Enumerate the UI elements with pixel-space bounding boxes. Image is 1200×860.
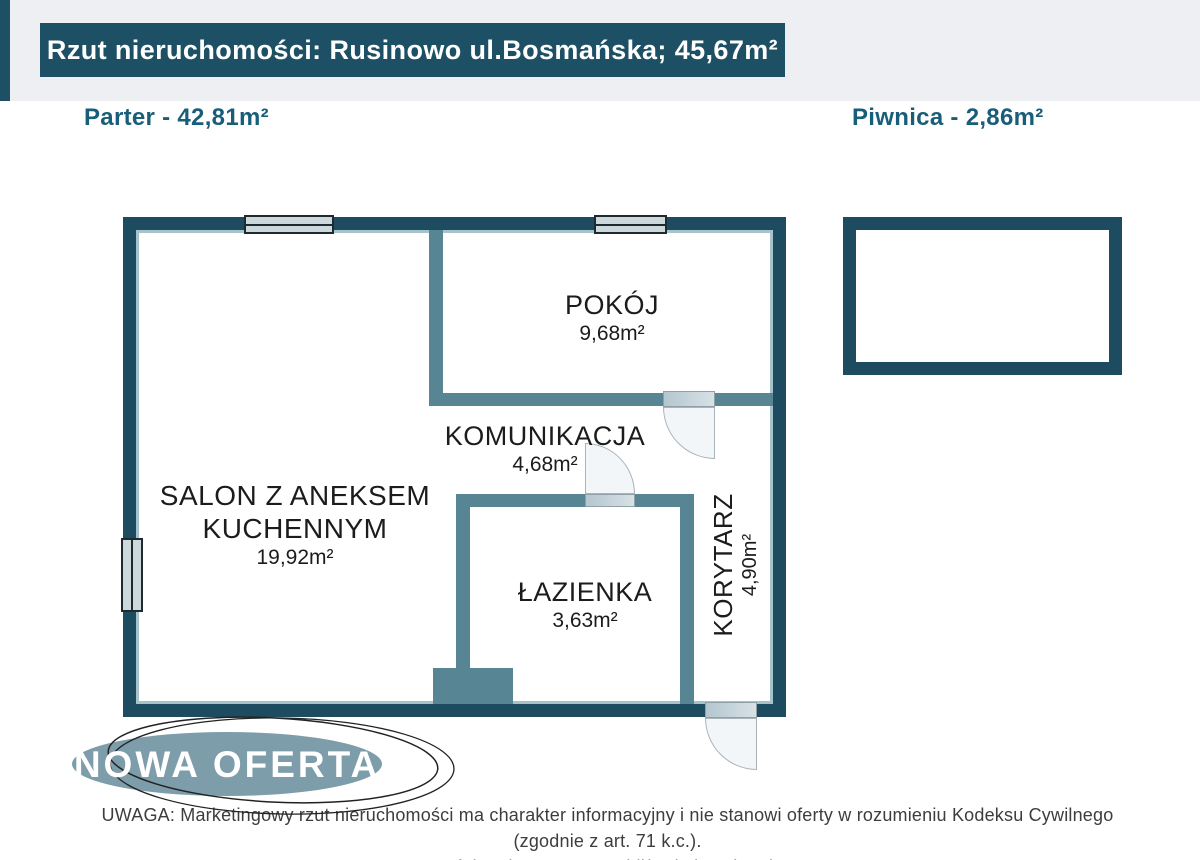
disclaimer-line-2: Wartości podane są w przybliżeniu i zaok… [85, 854, 1130, 860]
room-area: 19,92m² [145, 545, 445, 571]
room-name: KUCHENNYM [145, 512, 445, 545]
room-label-pokoj: POKÓJ 9,68m² [512, 289, 712, 347]
stamp-outline-ellipse [106, 709, 440, 810]
partition-salon-pokoj [429, 230, 443, 406]
outer-wall-top [123, 217, 786, 230]
window-divider [131, 540, 133, 610]
room-name: SALON Z ANEKSEM [145, 479, 445, 512]
disclaimer: UWAGA: Marketingowy rzut nieruchomości m… [85, 802, 1130, 860]
door-swing-entrance [705, 718, 757, 770]
door-leaf-lazienka [585, 494, 635, 507]
header-bar: Rzut nieruchomości: Rusinowo ul.Bosmańsk… [40, 23, 785, 77]
window-salon-top [244, 215, 334, 234]
room-area: 4,90m² [738, 435, 762, 695]
room-label-salon: SALON Z ANEKSEM KUCHENNYM 19,92m² [145, 479, 445, 571]
partition-pokoj-bottom-right [715, 393, 773, 406]
stamp-fill-ellipse [72, 732, 382, 796]
room-name: KOMUNIKACJA [420, 420, 670, 452]
page-title: Rzut nieruchomości: Rusinowo ul.Bosmańsk… [47, 35, 778, 66]
basement-floor-label: Piwnica - 2,86m² [852, 104, 1044, 132]
room-area: 9,68m² [512, 321, 712, 347]
room-area: 4,68m² [420, 452, 670, 478]
partition-pokoj-bottom-left [429, 393, 663, 406]
outer-wall-left [123, 217, 136, 717]
room-name: POKÓJ [512, 289, 712, 321]
room-label-komunikacja: KOMUNIKACJA 4,68m² [420, 420, 670, 478]
basement-plan-outline [843, 217, 1122, 375]
floor-plan-page: Rzut nieruchomości: Rusinowo ul.Bosmańsk… [0, 0, 1200, 860]
outer-wall-right [773, 217, 786, 717]
door-leaf-entrance [705, 702, 757, 718]
window-divider [596, 224, 665, 226]
stamp-text: NOWA OFERTA [74, 744, 380, 785]
window-divider [246, 224, 332, 226]
window-salon-left [121, 538, 143, 612]
partition-lazienka-left [456, 494, 470, 668]
disclaimer-line-1: UWAGA: Marketingowy rzut nieruchomości m… [85, 802, 1130, 854]
shaft-block [433, 668, 513, 704]
room-name: KORYTARZ [708, 435, 738, 695]
door-leaf-pokoj [663, 391, 715, 407]
ground-floor-label: Parter - 42,81m² [84, 104, 269, 132]
partition-lazienka-top-left [456, 494, 585, 507]
room-label-korytarz: KORYTARZ 4,90m² [704, 435, 766, 695]
room-label-lazienka: ŁAZIENKA 3,63m² [480, 576, 690, 634]
room-name: ŁAZIENKA [480, 576, 690, 608]
window-pokoj-top [594, 215, 667, 234]
outer-wall-bottom-left [123, 704, 705, 717]
room-area: 3,63m² [480, 608, 690, 634]
corner-accent-strip [0, 0, 10, 101]
outer-wall-bottom-right [757, 704, 786, 717]
